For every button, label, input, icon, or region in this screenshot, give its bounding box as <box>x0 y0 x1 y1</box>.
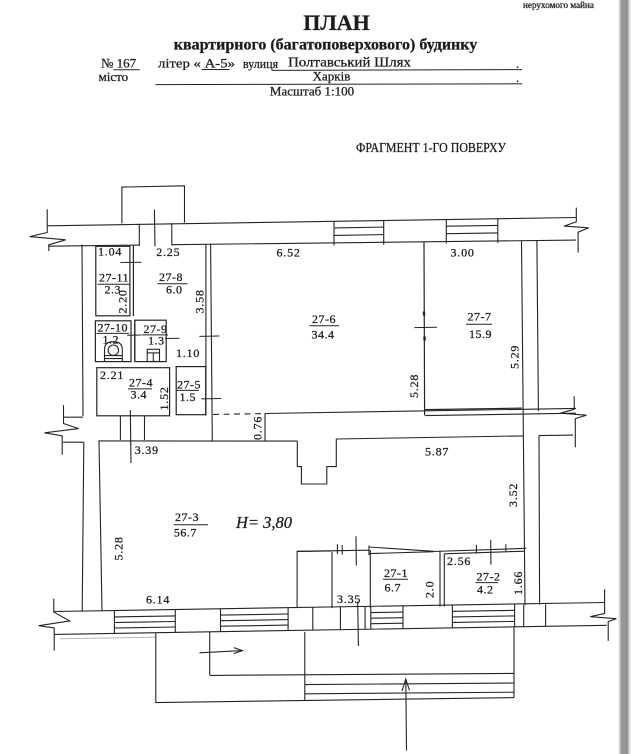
svg-text:3.35: 3.35 <box>337 592 361 606</box>
svg-text:Харків: Харків <box>313 69 351 84</box>
svg-text:.: . <box>516 56 519 71</box>
svg-text:2.25: 2.25 <box>156 245 180 259</box>
svg-text:3.58: 3.58 <box>193 289 207 313</box>
svg-text:34.4: 34.4 <box>312 328 335 342</box>
svg-text:місто: місто <box>99 69 129 84</box>
svg-text:0.76: 0.76 <box>251 416 265 440</box>
svg-text:4.2: 4.2 <box>477 583 494 597</box>
svg-text:ФРАГМЕНТ 1-ГО ПОВЕРХУ: ФРАГМЕНТ 1-ГО ПОВЕРХУ <box>356 141 506 156</box>
svg-text:3.00: 3.00 <box>451 246 475 260</box>
svg-text:6.0: 6.0 <box>166 283 183 297</box>
svg-text:Полтавський Шлях: Полтавський Шлях <box>288 55 411 70</box>
svg-text:2.21: 2.21 <box>100 368 124 382</box>
svg-text:Н= 3,80: Н= 3,80 <box>235 513 293 532</box>
svg-text:вулиця: вулиця <box>243 56 278 71</box>
svg-text:2.0: 2.0 <box>423 581 437 598</box>
svg-text:27-1: 27-1 <box>384 566 408 580</box>
svg-text:2.3: 2.3 <box>105 283 122 297</box>
svg-text:3.4: 3.4 <box>131 388 148 402</box>
svg-text:5.29: 5.29 <box>508 345 522 369</box>
svg-text:ПЛАН: ПЛАН <box>303 10 370 35</box>
svg-text:6.7: 6.7 <box>385 581 402 595</box>
svg-text:2.56: 2.56 <box>447 554 471 568</box>
svg-text:3.52: 3.52 <box>506 483 520 507</box>
svg-text:літер « А-5»: літер « А-5» <box>158 56 235 71</box>
svg-text:квартирного (багатоповерхового: квартирного (багатоповерхового) будинку <box>174 37 478 54</box>
svg-text:1.5: 1.5 <box>180 390 197 404</box>
svg-text:27-6: 27-6 <box>312 312 336 326</box>
svg-text:6.52: 6.52 <box>277 246 301 260</box>
svg-text:Масштаб 1:100: Масштаб 1:100 <box>270 84 354 99</box>
svg-text:нерухомого майна: нерухомого майна <box>523 0 594 10</box>
svg-text:6.14: 6.14 <box>146 593 170 607</box>
svg-text:1.2: 1.2 <box>103 332 120 346</box>
svg-text:27-2: 27-2 <box>477 569 501 583</box>
svg-text:27-7: 27-7 <box>468 310 492 324</box>
svg-text:5.28: 5.28 <box>112 536 126 560</box>
svg-text:5.28: 5.28 <box>407 374 421 398</box>
svg-text:1.04: 1.04 <box>98 245 122 259</box>
svg-text:3.39: 3.39 <box>135 443 159 457</box>
svg-text:56.7: 56.7 <box>174 526 197 540</box>
svg-text:1.66: 1.66 <box>511 571 525 595</box>
svg-text:1.10: 1.10 <box>176 346 200 360</box>
svg-text:.: . <box>516 70 519 85</box>
svg-text:15.9: 15.9 <box>469 327 492 341</box>
svg-text:1.3: 1.3 <box>148 333 165 347</box>
svg-text:27-3: 27-3 <box>175 510 199 524</box>
svg-text:1.52: 1.52 <box>157 386 171 410</box>
svg-text:5.87: 5.87 <box>425 445 449 459</box>
